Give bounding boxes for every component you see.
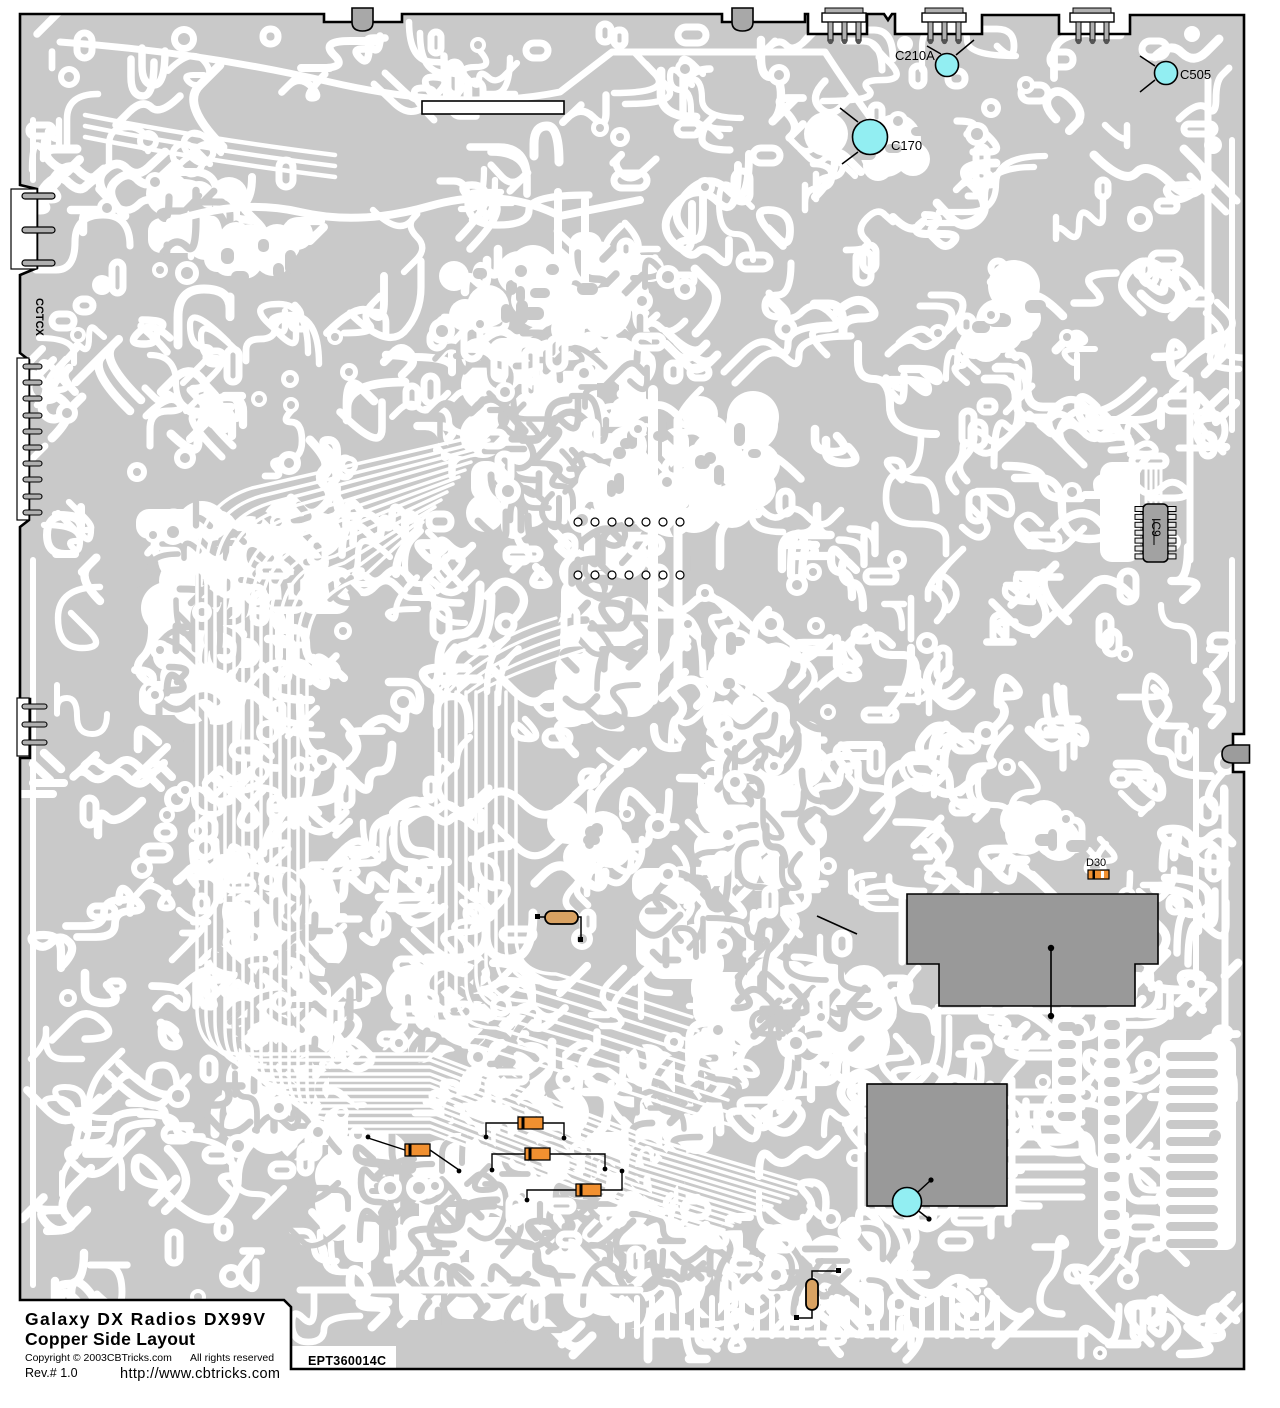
svg-text:D30: D30 bbox=[1086, 857, 1106, 869]
svg-text:http://www.cbtricks.com: http://www.cbtricks.com bbox=[120, 1366, 280, 1382]
svg-text:Copyright © 2003CBTricks.com: Copyright © 2003CBTricks.com bbox=[25, 1352, 172, 1364]
svg-text:C170: C170 bbox=[891, 138, 922, 153]
svg-text:Copper Side Layout: Copper Side Layout bbox=[25, 1329, 195, 1349]
svg-text:All rights reserved: All rights reserved bbox=[190, 1352, 274, 1364]
svg-text:EPT360014C: EPT360014C bbox=[308, 1354, 386, 1368]
svg-text:CCTCX: CCTCX bbox=[33, 298, 45, 337]
svg-text:Rev.# 1.0: Rev.# 1.0 bbox=[25, 1366, 78, 1380]
svg-text:C505: C505 bbox=[1180, 67, 1211, 82]
svg-text:C210A: C210A bbox=[895, 48, 935, 63]
svg-text:Galaxy DX Radios DX99V: Galaxy DX Radios DX99V bbox=[25, 1309, 265, 1329]
svg-text:IC9: IC9 bbox=[1149, 518, 1163, 537]
